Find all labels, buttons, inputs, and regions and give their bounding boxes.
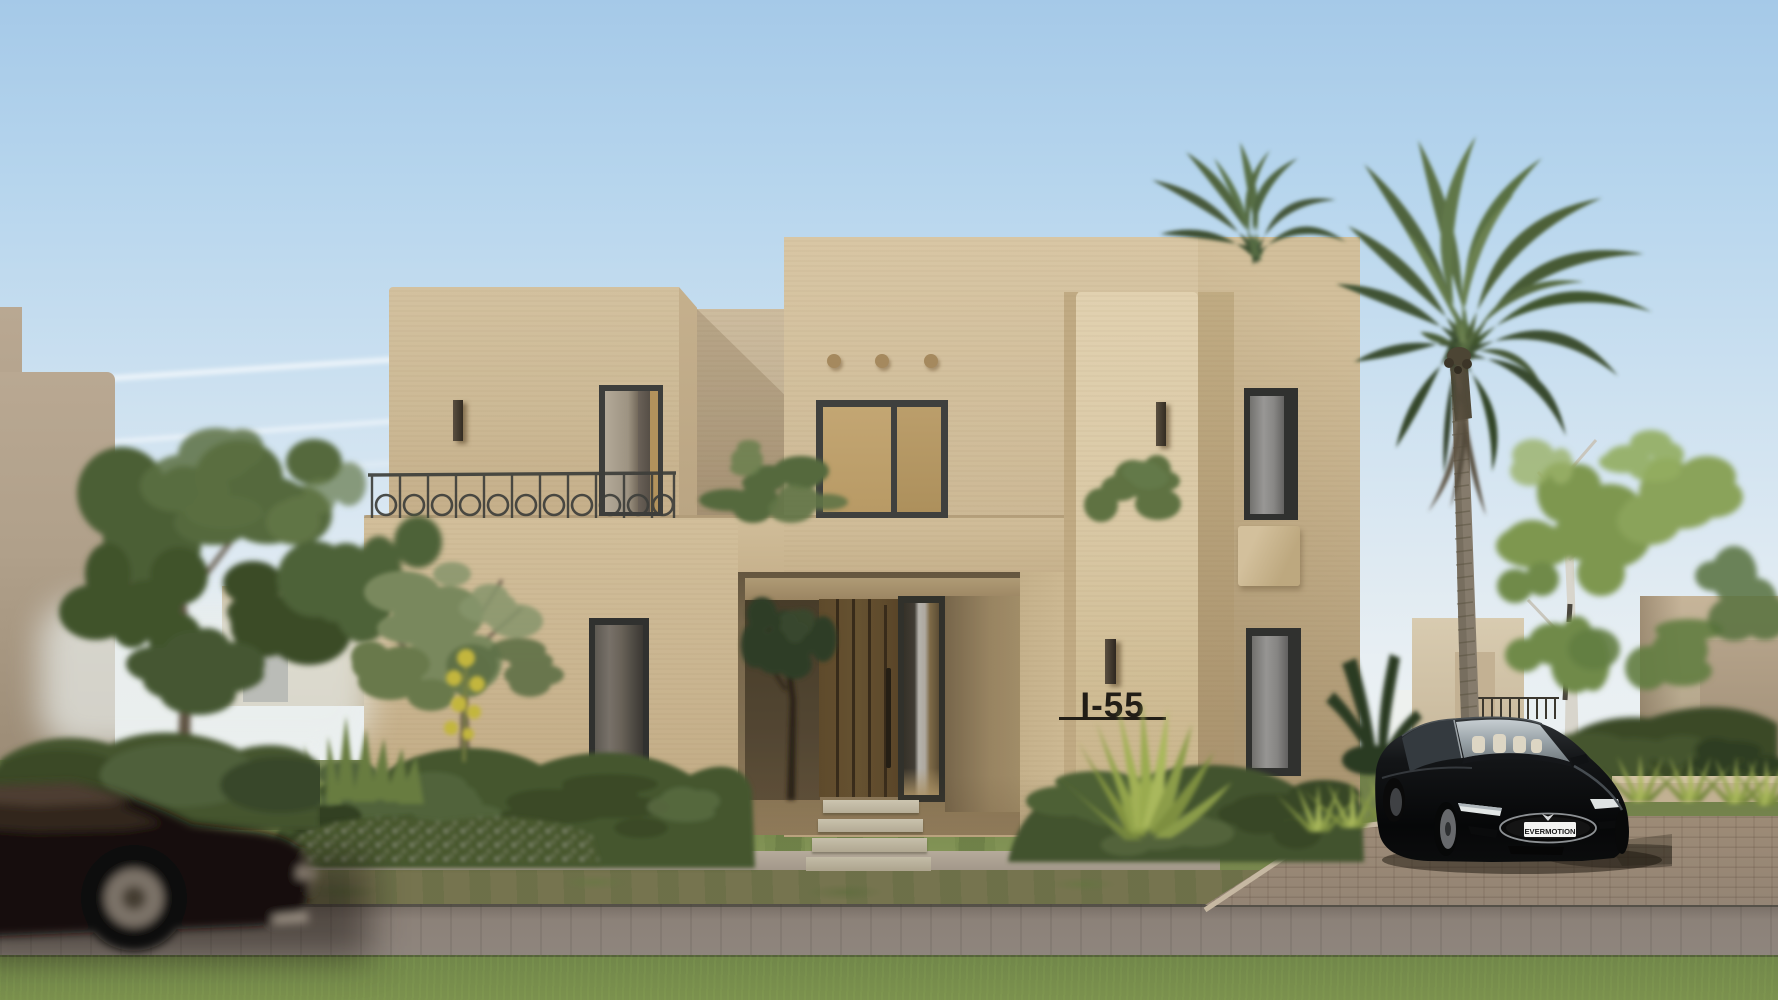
svg-text:EVERMOTION: EVERMOTION — [1524, 827, 1575, 836]
